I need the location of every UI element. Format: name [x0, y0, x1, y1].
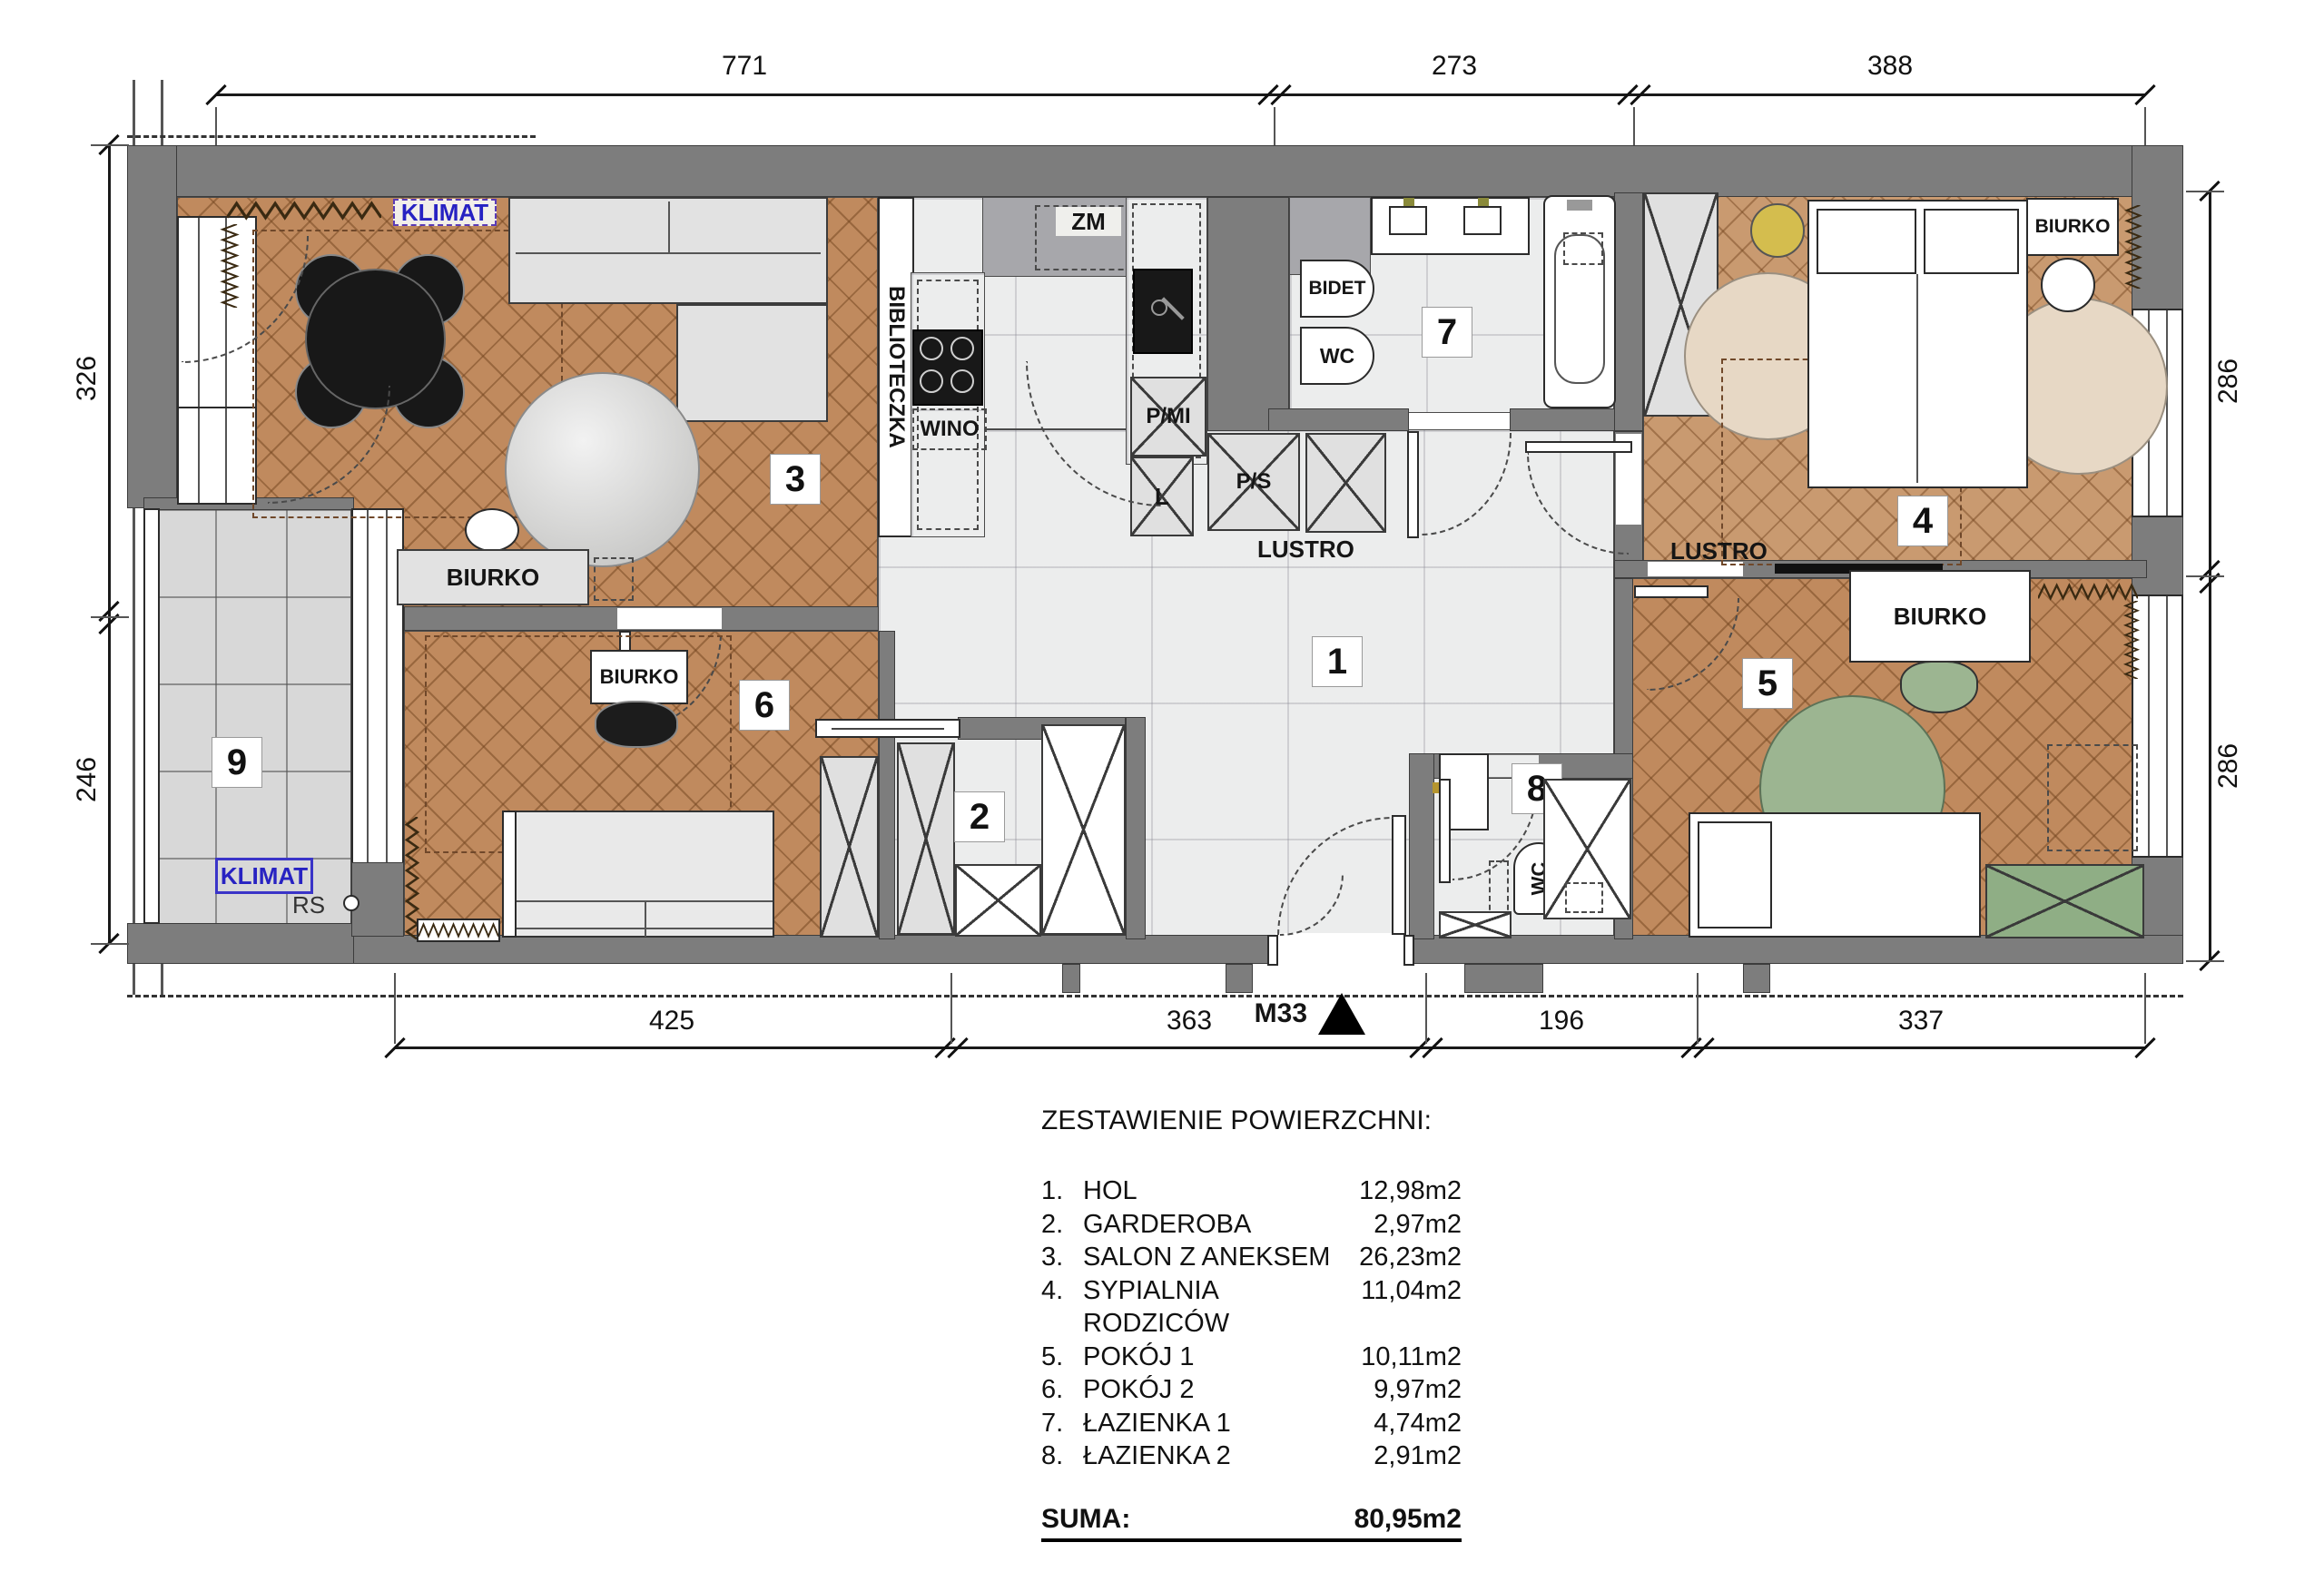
desk-pokoj2-label: BIURKO — [600, 665, 679, 689]
legend-area: 26,23m2 — [1359, 1241, 1462, 1274]
zm-label-box: ZM — [1056, 207, 1121, 236]
stove-burner — [950, 369, 974, 393]
legend-area: 9,97m2 — [1374, 1373, 1462, 1407]
window-frame-line — [2148, 596, 2150, 856]
legend-no: 4. — [1041, 1274, 1083, 1341]
garderoba-wardrobe-right — [1041, 724, 1126, 935]
wardrobe-pokoj2 — [820, 756, 879, 938]
biblioteczka-label: BIBLIOTECZKA — [883, 286, 909, 448]
overhang-dashed-line-top — [127, 135, 536, 138]
sofa-chaise — [676, 304, 828, 422]
legend-area: 10,11m2 — [1361, 1341, 1462, 1374]
wall-pokoj2-garderoba — [879, 631, 895, 939]
klimat-salon-label: KLIMAT — [401, 199, 488, 227]
vanity-faucet — [1478, 198, 1489, 206]
wine-fridge-box: WINO — [912, 408, 987, 450]
dim-top-388: 388 — [1781, 51, 1999, 82]
dim-ext — [91, 616, 129, 618]
legend-no: 2. — [1041, 1208, 1083, 1242]
legend-row-sypialnia: 4. SYPIALNIA RODZICÓW 11,04m2 — [1041, 1274, 1462, 1341]
desk-chair-sypialnia — [2041, 258, 2095, 312]
dim-ext — [91, 943, 129, 945]
desk-pokoj1: BIURKO — [1849, 570, 2031, 663]
corridor-wall-stub — [1464, 964, 1543, 993]
area-legend: ZESTAWIENIE POWIERZCHNI: 1. HOL 12,98m2 … — [1041, 1105, 1462, 1572]
legend-row-garderoba: 2. GARDEROBA 2,97m2 — [1041, 1208, 1462, 1242]
window-frame-line — [2166, 596, 2168, 856]
floor-plan-canvas: KLIMAT BIURKO 3 BIBLIOTECZKA ZM WINO P/M… — [0, 0, 2324, 1572]
rs-label: RS — [292, 891, 325, 919]
wall-exterior-left — [127, 145, 177, 508]
rug-salon-round — [505, 372, 700, 567]
legend-no: 7. — [1041, 1407, 1083, 1440]
desk-pokoj2: BIURKO — [590, 650, 688, 704]
stove-burner — [920, 369, 943, 393]
dim-ext — [2186, 191, 2224, 192]
room-number-pokoj2-text: 6 — [754, 685, 774, 726]
sofa-seam — [516, 252, 821, 254]
pillow — [1924, 209, 2019, 274]
desk-chair-pokoj2 — [595, 701, 678, 748]
dim-ext — [2186, 960, 2224, 962]
legend-area: 11,04m2 — [1361, 1274, 1462, 1341]
legend-row-hol: 1. HOL 12,98m2 — [1041, 1174, 1462, 1208]
legend-name: SALON Z ANEKSEM — [1083, 1241, 1359, 1274]
bed-pokoj2-headboard — [502, 811, 517, 938]
legend-row-pokoj1: 5. POKÓJ 1 10,11m2 — [1041, 1341, 1462, 1374]
legend-row-pokoj2: 6. POKÓJ 2 9,97m2 — [1041, 1373, 1462, 1407]
legend-no: 3. — [1041, 1241, 1083, 1274]
room-number-pokoj1-text: 5 — [1758, 663, 1777, 704]
ps-label: P/S — [1236, 469, 1272, 495]
wall-garderoba-right — [1126, 717, 1146, 939]
balkon-window-frame-line — [367, 510, 369, 862]
legend-suma-row: SUMA: 80,95m2 — [1041, 1504, 1462, 1542]
desk-chair-pokoj1 — [1900, 661, 1978, 713]
dim-top-273: 273 — [1345, 51, 1563, 82]
room-number-garderoba: 2 — [954, 791, 1005, 842]
legend-area: 2,91m2 — [1374, 1439, 1462, 1473]
pillow-pokoj1 — [1698, 821, 1772, 928]
desk-sypialnia: BIURKO — [2026, 198, 2119, 256]
wall-lazienka2-left — [1409, 753, 1434, 939]
pouf-yellow — [1750, 203, 1805, 258]
legend-suma-label: SUMA: — [1041, 1504, 1354, 1535]
hall-cabinet — [1305, 433, 1386, 533]
wall-kitchen-lazienka1 — [1207, 197, 1289, 431]
room-number-lazienka1-text: 7 — [1437, 312, 1457, 353]
klimat-balkon-label: KLIMAT — [221, 862, 308, 890]
dim-ext — [1697, 973, 1699, 1044]
stove-burner — [950, 337, 974, 360]
dim-ext — [394, 973, 396, 1044]
bidet-label: BIDET — [1309, 278, 1366, 300]
dim-bottom-337: 337 — [1812, 1006, 2030, 1037]
legend-name: ŁAZIENKA 1 — [1083, 1407, 1374, 1440]
dim-ext — [91, 144, 129, 146]
dim-ext — [2186, 575, 2224, 577]
room-number-sypialnia-text: 4 — [1913, 501, 1933, 542]
north-triangle — [1318, 993, 1365, 1035]
desk-chair-salon — [465, 508, 519, 552]
dim-ext — [2144, 973, 2146, 1044]
legend-no: 6. — [1041, 1373, 1083, 1407]
marker-m33: M33 — [1216, 998, 1307, 1029]
pokoj1-door-leaf — [1634, 585, 1709, 598]
legend-row-salon: 3. SALON Z ANEKSEM 26,23m2 — [1041, 1241, 1462, 1274]
legend-area: 2,97m2 — [1374, 1208, 1462, 1242]
window-frame-line — [225, 408, 227, 503]
window-frame-line — [2166, 310, 2168, 516]
desk-salon-label: BIURKO — [447, 564, 540, 592]
vanity-faucet — [1403, 198, 1414, 206]
desk-pokoj1-label: BIURKO — [1894, 603, 1987, 631]
stove-burner — [920, 337, 943, 360]
legend-name: HOL — [1083, 1174, 1359, 1208]
sypialnia-door-leaf — [1525, 441, 1632, 453]
bed-pokoj2-divider — [645, 900, 646, 937]
bookshelf-biblioteczka: BIBLIOTECZKA — [878, 197, 914, 537]
room-number-balkon-text: 9 — [227, 742, 247, 783]
window-salon-left-2 — [177, 407, 257, 505]
room-number-hol-text: 1 — [1327, 642, 1347, 683]
room-number-pokoj1: 5 — [1742, 658, 1793, 709]
legend-no: 5. — [1041, 1341, 1083, 1374]
legend-name: POKÓJ 2 — [1083, 1373, 1374, 1407]
legend-suma-value: 80,95m2 — [1354, 1504, 1462, 1535]
wall-exterior-top — [127, 145, 2183, 197]
legend-name: GARDEROBA — [1083, 1208, 1374, 1242]
klimat-salon-box: KLIMAT — [393, 199, 497, 226]
wall-balkon-bottom — [127, 923, 354, 964]
room-number-sypialnia: 4 — [1897, 496, 1948, 546]
room-number-salon: 3 — [770, 454, 821, 505]
pokoj1-dashed-rect — [2047, 744, 2138, 851]
wall-lazienka1-right — [1614, 192, 1643, 431]
sofa-seam — [668, 201, 670, 252]
dim-line-bottom — [395, 1046, 2145, 1049]
entrance-jamb — [1403, 935, 1414, 966]
lazienka1-door-leaf — [1407, 431, 1419, 538]
legend-name: SYPIALNIA RODZICÓW — [1083, 1274, 1361, 1341]
legend-no: 8. — [1041, 1439, 1083, 1473]
radiator-pokoj2-bottom — [417, 919, 500, 942]
dim-right-286-top: 286 — [2213, 290, 2244, 472]
bed-pokoj2 — [502, 811, 774, 938]
dim-line-left — [108, 145, 111, 944]
radiator-pokoj1-right — [2122, 601, 2142, 679]
dim-ext — [1274, 107, 1275, 145]
pillow — [1817, 209, 1916, 274]
dim-ext — [1633, 107, 1635, 145]
toilet-lazienka1: WC — [1300, 327, 1374, 385]
room-number-pokoj2: 6 — [739, 680, 790, 731]
vanity-sink — [1463, 206, 1502, 235]
storage-box-green — [1985, 864, 2144, 938]
balkon-railing — [143, 508, 160, 924]
dim-left-326: 326 — [72, 288, 103, 469]
dim-bottom-196: 196 — [1452, 1006, 1670, 1037]
klimat-balkon-box: KLIMAT — [215, 858, 313, 894]
room-number-balkon: 9 — [212, 737, 262, 788]
radiator-sypialnia — [2122, 205, 2144, 289]
corridor-wall-stub — [1226, 964, 1253, 993]
desk-salon: BIURKO — [397, 549, 589, 605]
window-frame-line — [198, 408, 200, 503]
shower-head-dash — [1563, 232, 1603, 265]
corridor-wall-stub — [1062, 964, 1080, 993]
bathtub-faucet — [1567, 200, 1592, 211]
lazienka2-low-cabinet — [1439, 911, 1512, 938]
dim-bottom-425: 425 — [563, 1006, 781, 1037]
legend-row-lazienka1: 7. ŁAZIENKA 1 4,74m2 — [1041, 1407, 1462, 1440]
legend-name: ŁAZIENKA 2 — [1083, 1439, 1374, 1473]
bidet: BIDET — [1300, 260, 1374, 318]
entrance-jamb — [1267, 935, 1278, 966]
dim-left-246: 246 — [72, 689, 103, 870]
legend-title: ZESTAWIENIE POWIERZCHNI: — [1041, 1105, 1462, 1136]
room-number-hol: 1 — [1312, 636, 1363, 687]
dim-line-top — [216, 93, 2145, 96]
dim-ext — [2144, 107, 2146, 145]
room-number-lazienka1: 7 — [1422, 307, 1472, 358]
corridor-wall-stub — [1743, 964, 1770, 993]
entrance-door-leaf — [1392, 815, 1406, 935]
entrance-opening — [1275, 933, 1407, 966]
shower-drain-dash — [1565, 882, 1603, 913]
overhang-dashed-line-bottom — [127, 995, 2183, 997]
balkon-window-frame-line — [386, 510, 388, 862]
radiator-pokoj1-top — [2038, 581, 2138, 603]
wall-balkon-stub — [351, 862, 404, 937]
zm-label: ZM — [1071, 208, 1106, 236]
dim-ext — [950, 973, 952, 1044]
dim-top-771: 771 — [635, 51, 853, 82]
garderoba-wardrobe-left — [897, 742, 955, 935]
lazienka2-door-leaf — [1439, 779, 1451, 883]
wc-lazienka1-label: WC — [1320, 344, 1354, 368]
radiator-salon-top — [227, 199, 381, 222]
lustro-hol-label: LUSTRO — [1257, 535, 1354, 564]
hall-cabinet-ps: P/S — [1207, 433, 1300, 531]
wino-label: WINO — [920, 417, 979, 442]
door-opening-pokoj2 — [617, 608, 722, 629]
desk-sypialnia-label: BIURKO — [2035, 216, 2111, 238]
wall-lazienka1-bottom-left — [1268, 408, 1409, 431]
room-number-garderoba-text: 2 — [970, 797, 990, 838]
vanity-sink — [1389, 206, 1427, 235]
legend-row-lazienka2: 8. ŁAZIENKA 2 2,91m2 — [1041, 1439, 1462, 1473]
room-number-salon-text: 3 — [785, 459, 805, 500]
legend-no: 1. — [1041, 1174, 1083, 1208]
dim-ext — [215, 107, 217, 145]
lustro-pokoj1-label: LUSTRO — [1670, 537, 1768, 565]
dim-right-286-bottom: 286 — [2213, 675, 2244, 857]
legend-area: 12,98m2 — [1359, 1174, 1462, 1208]
dim-ext — [1425, 973, 1427, 1044]
rs-sensor — [343, 895, 359, 911]
legend-area: 4,74m2 — [1374, 1407, 1462, 1440]
garderoba-sliding-door — [815, 719, 960, 738]
legend-name: POKÓJ 1 — [1083, 1341, 1361, 1374]
garderoba-cabinet-bottom — [955, 864, 1041, 937]
dashed-cabinet-salon — [594, 557, 634, 601]
bed-center-line — [1916, 274, 1918, 483]
